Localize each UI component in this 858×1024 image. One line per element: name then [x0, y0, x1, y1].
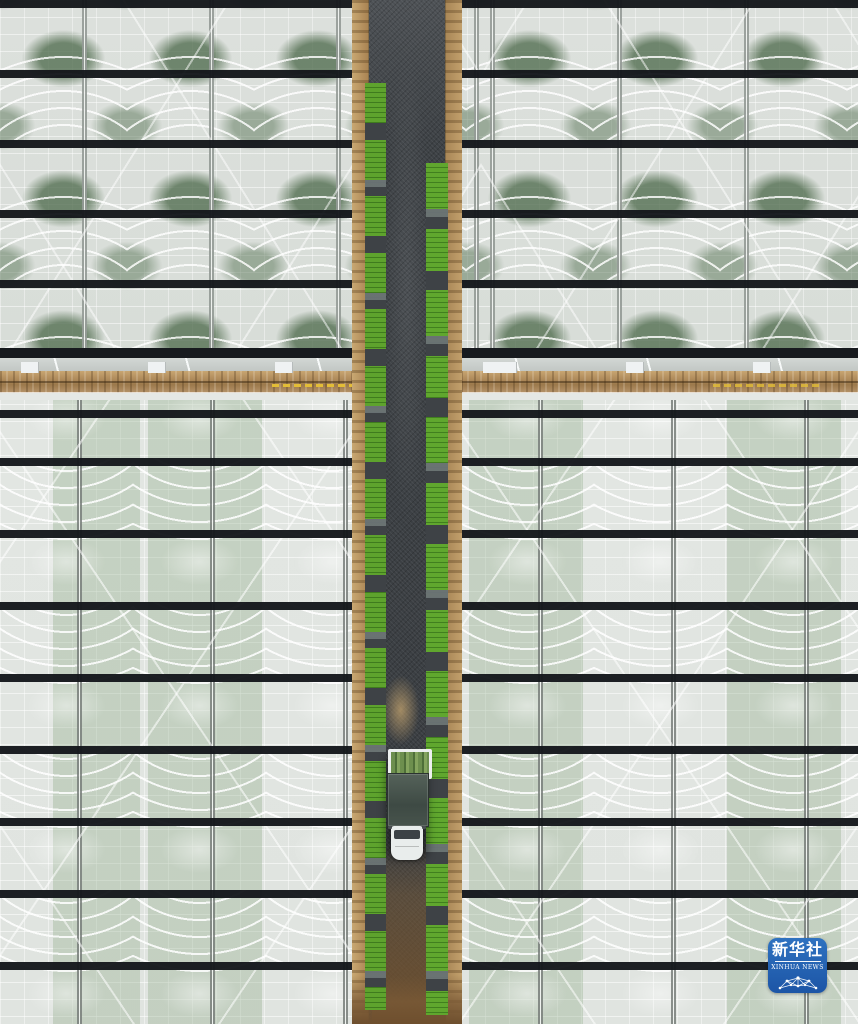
truck-windshield [394, 830, 420, 839]
greenhouse-block-top-right [461, 0, 858, 348]
walkway-lower-edge [0, 393, 353, 400]
logo-divider-line [775, 961, 821, 962]
walkway-groove [0, 381, 353, 383]
walkway-band-right [461, 348, 858, 400]
greenhouse-block-top-left [0, 0, 353, 348]
aerial-greenhouse-photo: 新华社 XINHUA NEWS [0, 0, 858, 1024]
walkway-yellow-marking [272, 384, 353, 387]
truck-cargo-bed [387, 773, 429, 827]
walkway-groove [461, 381, 858, 383]
walkway-lower-edge [461, 393, 858, 400]
walkway-vent-boxes [0, 362, 353, 373]
xinhua-chinese-wordmark: 新华社 [772, 943, 823, 959]
xinhua-english-wordmark: XINHUA NEWS [771, 964, 824, 971]
truck-cab [391, 826, 423, 860]
central-road [352, 0, 462, 1024]
truck [384, 748, 430, 862]
seedling-trays-right [426, 163, 448, 1015]
network-globe-icon [777, 972, 819, 992]
seedling-trays-left [365, 83, 386, 1010]
walkway-black-bar [0, 348, 353, 358]
truck-hood-line [395, 846, 419, 847]
greenhouse-block-bottom-left [0, 400, 353, 1024]
truck-mirror-right [422, 826, 426, 829]
greenhouse-block-bottom-right [461, 400, 858, 1024]
walkway-yellow-marking [713, 384, 823, 387]
walkway-band-left [0, 348, 353, 400]
walkway-black-bar [461, 348, 858, 358]
walkway-vent-boxes [461, 362, 858, 373]
xinhua-news-watermark: 新华社 XINHUA NEWS [768, 938, 827, 993]
truck-mirror-left [388, 826, 392, 829]
